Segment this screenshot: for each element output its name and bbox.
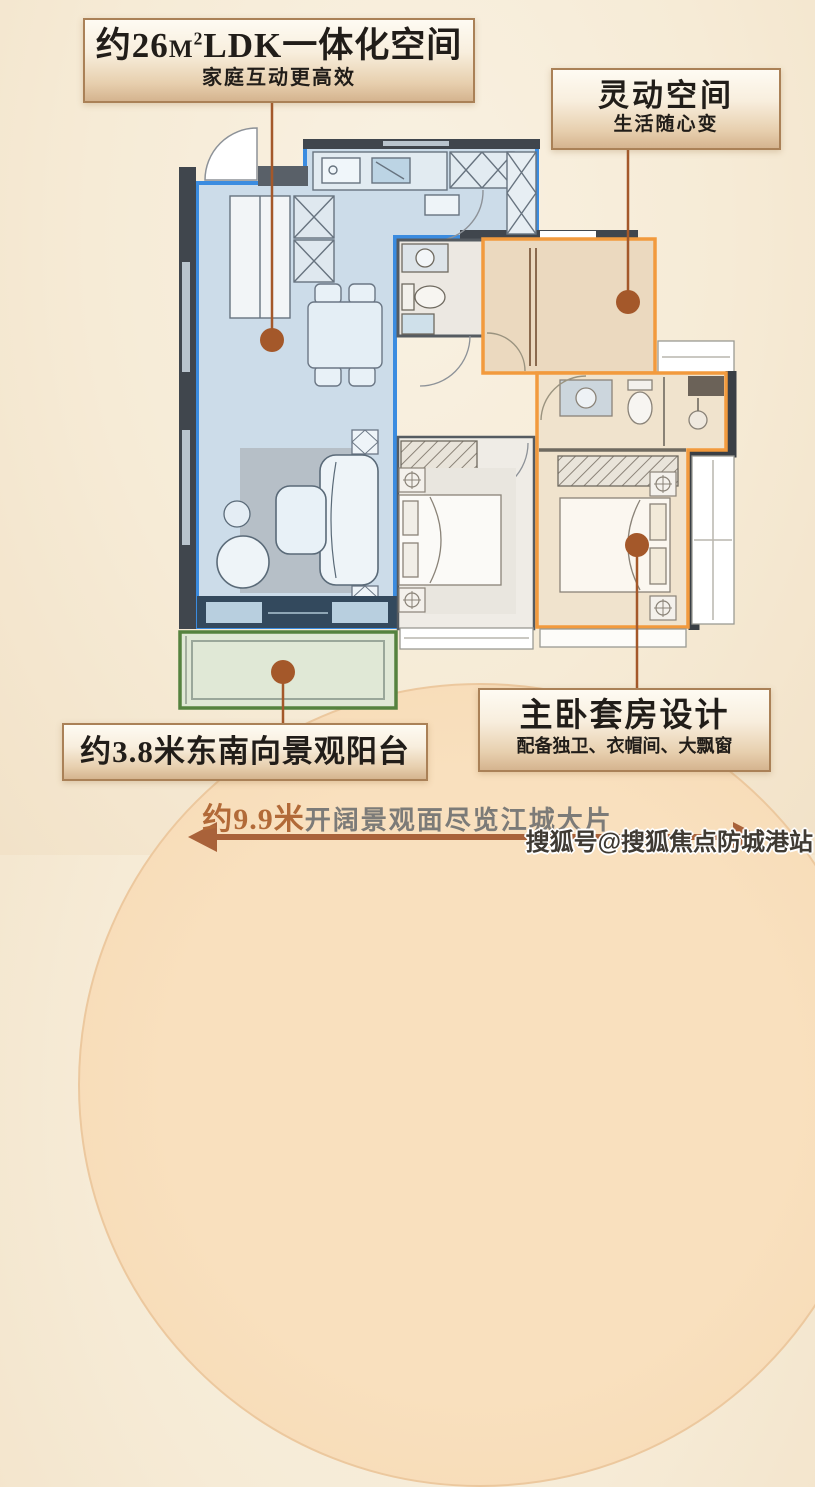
armchair xyxy=(217,536,269,588)
middle-bedroom xyxy=(398,437,534,649)
flex-title: 灵动空间 xyxy=(553,78,779,114)
label-ldk-space: 约26M2LDK一体化空间 家庭互动更高效 xyxy=(83,18,475,103)
ldk-subtitle: 家庭互动更高效 xyxy=(85,66,473,90)
flex-subtitle: 生活随心变 xyxy=(553,114,779,137)
coffee-table xyxy=(276,486,326,554)
balcony-title: 约3.8米东南向景观阳台 xyxy=(80,734,410,770)
ldk-title: 约26M2LDK一体化空间 xyxy=(85,26,473,66)
master-suite-region xyxy=(537,373,734,647)
marketing-floorplan-page: { "labels": { "ldk": { "title_prefix": "… xyxy=(0,0,815,855)
master-subtitle: 配备独卫、衣帽间、大飘窗 xyxy=(480,736,769,758)
watermark: 搜狐号@搜狐焦点防城港站 xyxy=(526,822,813,857)
sofa xyxy=(320,455,378,585)
dimension-value: 约9.9米 xyxy=(202,803,305,836)
living-bay-window xyxy=(197,596,397,628)
master-title: 主卧套房设计 xyxy=(480,698,769,736)
label-flex-space: 灵动空间 生活随心变 xyxy=(551,68,781,150)
living-room xyxy=(217,430,378,610)
label-master-suite: 主卧套房设计 配备独卫、衣帽间、大飘窗 xyxy=(478,688,771,772)
flex-room-region xyxy=(483,239,734,373)
label-balcony: 约3.8米东南向景观阳台 xyxy=(62,723,428,781)
entry-door xyxy=(205,128,257,180)
bathroom xyxy=(398,240,484,386)
